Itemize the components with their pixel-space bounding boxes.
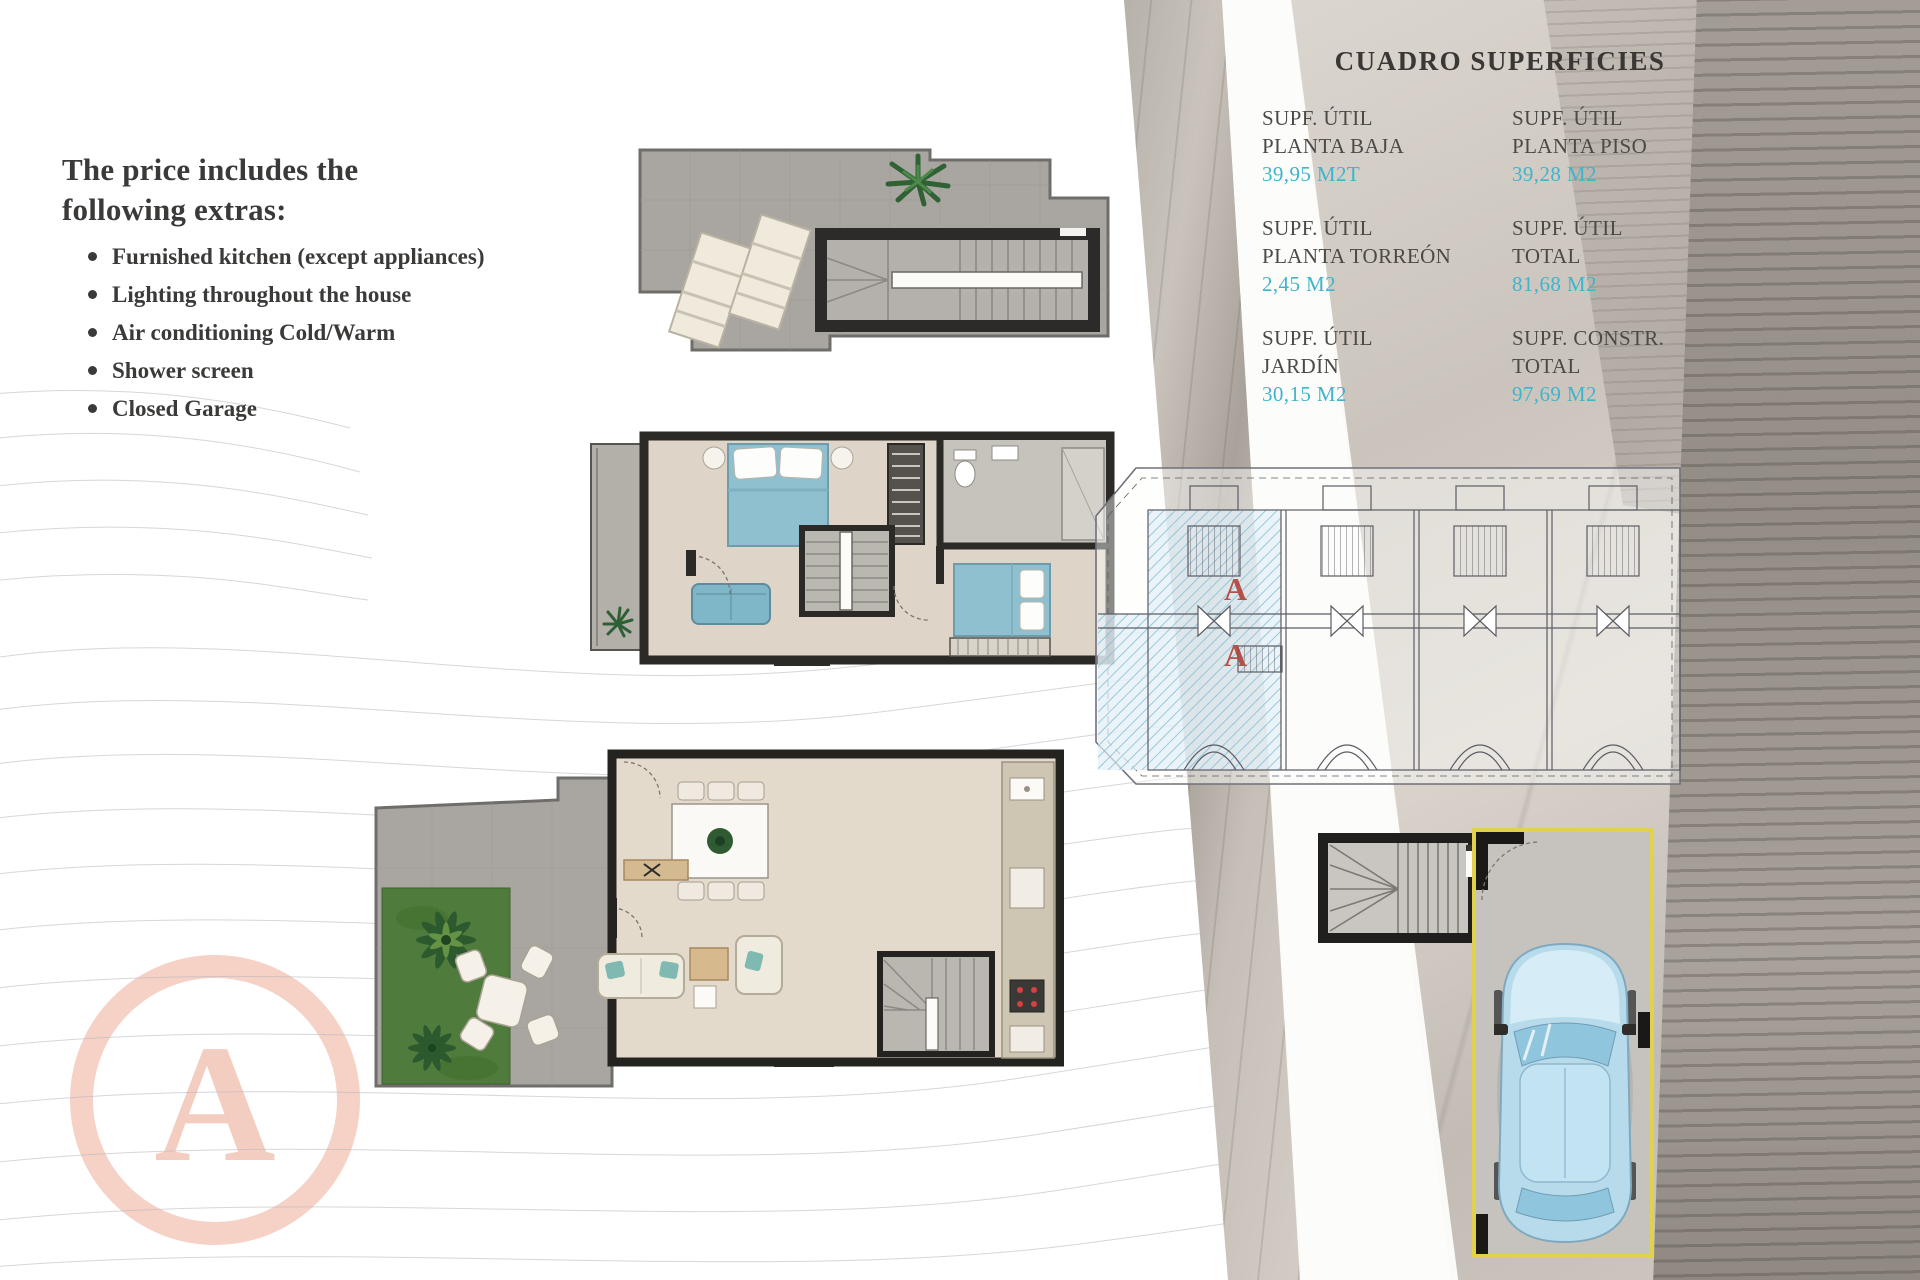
- dining-table: [672, 782, 768, 900]
- surface-value: 30,15 M2: [1262, 380, 1512, 408]
- surface-cell-jardin: SUPF. ÚTIL JARDÍN 30,15 M2: [1262, 324, 1512, 408]
- surface-value: 2,45 M2: [1262, 270, 1512, 298]
- section-marker-a: A: [1224, 571, 1247, 607]
- kitchen: [1002, 762, 1054, 1058]
- extras-item: Furnished kitchen (except appliances): [62, 242, 502, 271]
- bathroom: [940, 440, 1110, 546]
- surface-value: 39,28 M2: [1512, 160, 1762, 188]
- stairwell-plan: [1316, 831, 1480, 945]
- surface-label-line: SUPF. CONSTR.: [1512, 324, 1762, 352]
- ground-floor-plan: [372, 748, 1064, 1094]
- closet: [950, 638, 1050, 656]
- price-includes-block: The price includes the following extras:…: [62, 150, 502, 432]
- first-floor-plan: [588, 428, 1116, 666]
- unit-a-hatch: [1098, 614, 1148, 770]
- stove-icon: [1010, 980, 1044, 1012]
- garage-wall: [1476, 1214, 1488, 1254]
- car-top-view-icon: [1494, 940, 1636, 1246]
- console-table: [624, 860, 688, 880]
- surface-label-line: PLANTA BAJA: [1262, 132, 1512, 160]
- surface-label-line: SUPF. ÚTIL: [1512, 214, 1762, 242]
- nightstand: [703, 447, 725, 469]
- surface-value: 97,69 M2: [1512, 380, 1762, 408]
- nightstand: [831, 447, 853, 469]
- roof-stairwell: [815, 228, 1100, 332]
- surface-label-line: JARDÍN: [1262, 352, 1512, 380]
- section-marker-a: A: [1224, 637, 1247, 673]
- sofa: [692, 584, 770, 624]
- stairs: [880, 954, 992, 1054]
- surface-value: 39,95 M2T: [1262, 160, 1512, 188]
- car-mirror: [1494, 1024, 1508, 1035]
- surface-label-line: SUPF. ÚTIL: [1512, 104, 1762, 132]
- toilet-icon: [954, 450, 976, 487]
- surface-label-line: SUPF. ÚTIL: [1262, 104, 1512, 132]
- surfaces-table-title: CUADRO SUPERFICIES: [1280, 46, 1720, 77]
- extras-item: Closed Garage: [62, 394, 502, 423]
- extras-list: Furnished kitchen (except appliances) Li…: [62, 242, 502, 423]
- surface-cell-planta-torreon: SUPF. ÚTIL PLANTA TORREÓN 2,45 M2: [1262, 214, 1512, 298]
- armchair: [736, 936, 782, 994]
- surface-cell-planta-baja: SUPF. ÚTIL PLANTA BAJA 39,95 M2T: [1262, 104, 1512, 188]
- surface-label-line: SUPF. ÚTIL: [1262, 214, 1512, 242]
- heading-line: following extras:: [62, 190, 502, 230]
- surface-label-line: TOTAL: [1512, 242, 1762, 270]
- extras-item: Lighting throughout the house: [62, 280, 502, 309]
- stairs: [802, 528, 892, 614]
- surface-cell-planta-piso: SUPF. ÚTIL PLANTA PISO 39,28 M2: [1512, 104, 1762, 188]
- surface-label-line: PLANTA PISO: [1512, 132, 1762, 160]
- site-plan: A A: [1088, 450, 1688, 802]
- sink-icon: [992, 446, 1018, 460]
- heading-line: The price includes the: [62, 150, 502, 190]
- surface-label-line: PLANTA TORREÓN: [1262, 242, 1512, 270]
- extras-item: Shower screen: [62, 356, 502, 385]
- garage-wall: [1638, 1012, 1650, 1048]
- surface-cell-util-total: SUPF. ÚTIL TOTAL 81,68 M2: [1512, 214, 1762, 298]
- brochure-page: A The price includes: [0, 0, 1920, 1280]
- surface-label-line: SUPF. ÚTIL: [1262, 324, 1512, 352]
- garage-plan: [1472, 828, 1654, 1258]
- surface-value: 81,68 M2: [1512, 270, 1762, 298]
- door-arc: [1478, 836, 1548, 906]
- bed-double: [954, 564, 1050, 636]
- car-mirror: [1622, 1024, 1636, 1035]
- price-includes-heading: The price includes the following extras:: [62, 150, 502, 230]
- surface-cell-constr-total: SUPF. CONSTR. TOTAL 97,69 M2: [1512, 324, 1762, 408]
- roof-terrace-plan: [630, 140, 1117, 354]
- sofa: [598, 954, 684, 998]
- extras-item: Air conditioning Cold/Warm: [62, 318, 502, 347]
- surface-label-line: TOTAL: [1512, 352, 1762, 380]
